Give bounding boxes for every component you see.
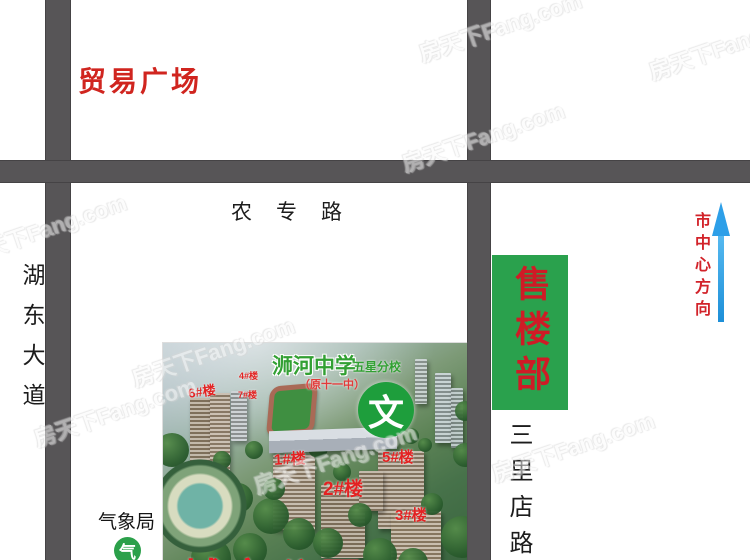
- building-label-3: 3#楼: [395, 504, 427, 525]
- road-nongzhuan-road: [0, 160, 750, 183]
- culture-badge-icon: 文: [358, 382, 414, 438]
- building-label-5: 5#楼: [382, 446, 414, 467]
- sales-office-sign: 售楼部: [492, 255, 568, 410]
- tower-building: [435, 373, 451, 443]
- road-sanlidian-road: [467, 0, 491, 560]
- weather-bureau-label: 气象局: [98, 507, 155, 534]
- up-arrow-icon: [712, 202, 730, 322]
- sanlidian-road-label: 三里店路: [501, 422, 536, 560]
- tree-blob: [441, 516, 467, 558]
- sales-office-label: 售楼部: [504, 265, 556, 400]
- school-note-label: （原十一中）: [299, 376, 365, 392]
- trade-plaza-label: 贸易广场: [78, 60, 202, 100]
- tree-blob: [263, 478, 285, 500]
- tree-blob: [403, 428, 419, 444]
- tree-blob: [418, 438, 432, 452]
- building-label-7: 7#楼: [238, 388, 257, 401]
- building-label-1: 1#楼: [273, 447, 306, 470]
- building-label-2: 2#楼: [323, 474, 363, 501]
- city-center-direction-label: 市中心方向: [688, 212, 712, 322]
- building-label-6: 6#楼: [187, 379, 217, 402]
- building-label-4: 4#楼: [239, 369, 258, 382]
- school-branch-label: 五星分校: [353, 358, 401, 375]
- weather-badge-icon: 气: [114, 537, 141, 560]
- hudong-avenue-label: 湖东大道: [15, 263, 49, 423]
- watermark: 房天下Fang.com: [414, 0, 585, 69]
- arrow-head: [712, 202, 730, 236]
- watermark: 房天下Fang.com: [644, 1, 750, 87]
- project-name-label: 城市公园: [183, 546, 367, 560]
- nongzhuan-road-label: 农专路: [231, 196, 366, 226]
- aerial-photo: 浉河中学 五星分校 （原十一中） 文 6#楼 4#楼 7#楼 1#楼 5#楼 2…: [163, 343, 467, 560]
- location-map: 贸易广场 农专路 湖东大道 三里店路 售楼部 市中心方向 气象局 气 浉河中学 …: [0, 0, 750, 560]
- tree-blob: [245, 441, 263, 459]
- arrow-shaft: [718, 236, 724, 322]
- tower-building: [415, 359, 427, 404]
- tree-blob: [348, 503, 372, 527]
